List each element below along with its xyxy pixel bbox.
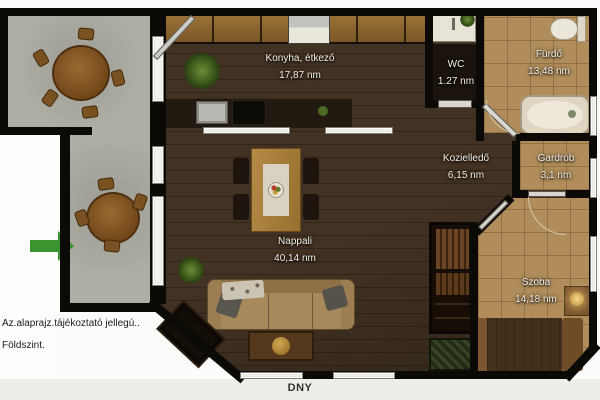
- decor-bowl-icon: [272, 337, 290, 355]
- lamp-icon: [570, 292, 584, 306]
- room-label-hallway: Kozielledő 6,15 nm: [443, 150, 489, 184]
- cooktop-icon: [232, 100, 266, 125]
- dining-chair: [233, 158, 249, 184]
- patio-chair: [97, 177, 115, 191]
- wall-bath-bottom: [516, 133, 597, 141]
- patterned-throw: [221, 280, 264, 301]
- disclaimer-line-1: Az.alaprajz.tájékoztató jellegú..: [2, 313, 140, 335]
- room-label-kitchen: Konyha, étkező 17,87 nm: [266, 50, 335, 84]
- room-area: 17,87 nm: [266, 67, 335, 84]
- dining-chair: [303, 194, 319, 220]
- bed-mattress: [487, 318, 562, 371]
- room-area: 1.27 nm: [438, 73, 474, 90]
- sink-icon: [196, 101, 228, 124]
- window-left-living-upper: [152, 146, 164, 184]
- faucet-icon: [568, 110, 576, 118]
- sofa: [207, 279, 355, 330]
- room-name: WC: [438, 56, 474, 73]
- stove-icon: [288, 14, 330, 44]
- book-row: [436, 273, 469, 295]
- room-name: Szoba: [515, 274, 557, 291]
- room-name: Konyha, étkező: [266, 50, 335, 67]
- wc-door[interactable]: [438, 100, 472, 108]
- room-name: Gardrób: [538, 150, 575, 167]
- room-label-bathroom: Fürdő 13,48 nm: [528, 46, 570, 80]
- patio-chair: [78, 27, 95, 40]
- toilet-tank: [577, 16, 586, 42]
- patio-chair: [81, 105, 99, 119]
- potted-plant-icon: [184, 52, 220, 90]
- window-right-bedroom: [590, 236, 597, 292]
- floorplan-canvas: Konyha, étkező 17,87 nm WC 1.27 nm Fürdő…: [0, 0, 600, 400]
- patio-table: [86, 192, 140, 244]
- window-bottom-right: [333, 372, 395, 379]
- counter-edge-left: [203, 127, 290, 134]
- dining-chair: [303, 158, 319, 184]
- window-bottom-left: [240, 372, 303, 379]
- sofa-seam: [268, 293, 269, 329]
- patio-table: [52, 45, 110, 101]
- disclaimer-note: Az.alaprajz.tájékoztató jellegú.. Földsz…: [2, 313, 140, 357]
- room-name: Kozielledő: [443, 150, 489, 167]
- bookshelf: [429, 222, 476, 334]
- compass-label: DNY: [0, 382, 600, 394]
- window-right-bath: [590, 96, 597, 136]
- toilet-icon: [550, 18, 578, 40]
- room-area: 3,1 nm: [538, 167, 575, 184]
- room-label-bedroom: Szoba 14,18 nm: [515, 274, 557, 308]
- potted-plant-icon: [178, 256, 204, 284]
- wall-terrace2-left: [60, 135, 70, 312]
- food-plate-icon: [268, 182, 284, 198]
- wall-top: [0, 8, 597, 16]
- shelf-line: [435, 303, 470, 305]
- wall-bedroom-left: [470, 222, 478, 371]
- counter-edge-right: [325, 127, 393, 134]
- wall-wc-left: [425, 8, 433, 108]
- wall-wc-bath: [476, 8, 484, 141]
- shelf-line: [435, 317, 470, 319]
- room-name: Fürdő: [528, 46, 570, 63]
- room-area: 14,18 nm: [515, 291, 557, 308]
- wall-wardrobe-bottom-left: [512, 190, 528, 198]
- window-right-wardrobe: [590, 158, 597, 198]
- wc-faucet-icon: [452, 18, 455, 30]
- green-rug: [429, 338, 474, 371]
- room-name: Nappali: [274, 233, 316, 250]
- dining-chair: [233, 194, 249, 220]
- book-row: [436, 229, 469, 269]
- wall-terrace1-left: [0, 8, 8, 135]
- counter-herb-icon: [318, 106, 328, 116]
- terrace-door[interactable]: [152, 196, 164, 286]
- patio-chair: [103, 239, 120, 253]
- sofa-seam: [312, 293, 313, 329]
- bed-footboard: [478, 318, 487, 371]
- bathtub-icon: [520, 95, 590, 135]
- room-label-living-room: Nappali 40,14 nm: [274, 233, 316, 267]
- room-area: 40,14 nm: [274, 250, 316, 267]
- wall-terrace1-bottom: [0, 127, 92, 135]
- disclaimer-line-2: Földszint.: [2, 335, 140, 357]
- room-label-wc: WC 1.27 nm: [438, 56, 474, 90]
- room-label-wardrobe: Gardrób 3,1 nm: [538, 150, 575, 184]
- wall-terrace2-bottom: [60, 303, 160, 312]
- room-area: 6,15 nm: [443, 167, 489, 184]
- entry-arrow-icon: [30, 240, 58, 252]
- room-area: 13,48 nm: [528, 63, 570, 80]
